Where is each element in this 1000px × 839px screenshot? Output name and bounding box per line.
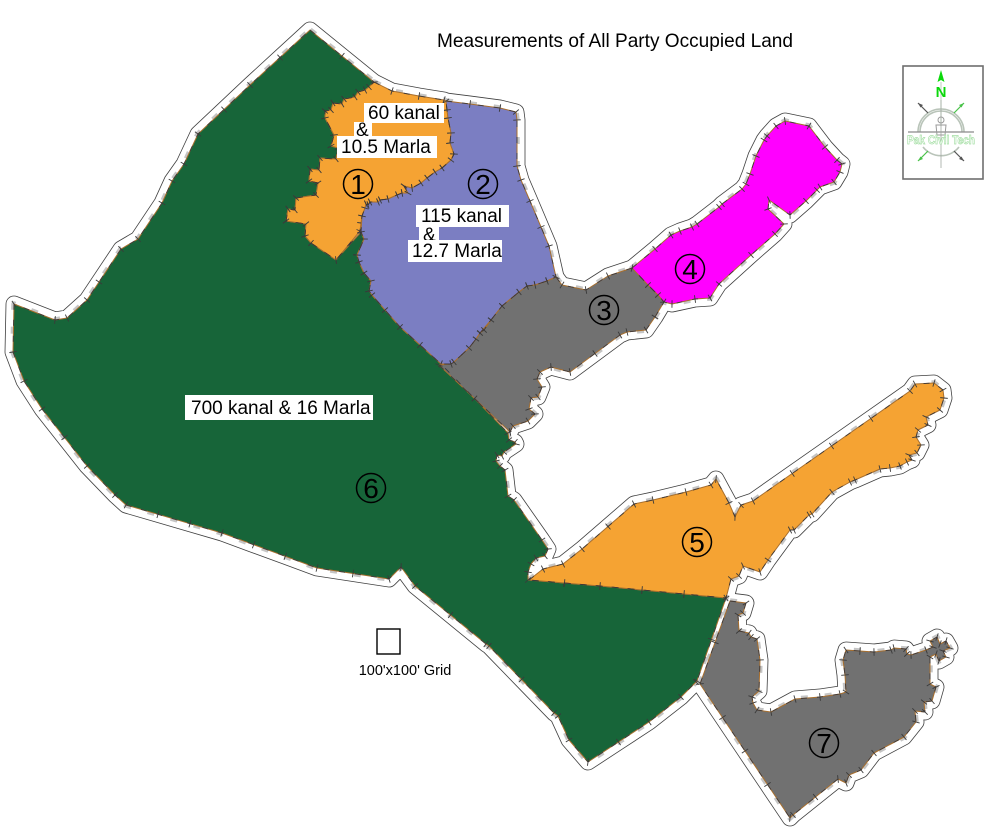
svg-text:N: N [936,84,947,101]
svg-text:3: 3 [596,295,612,326]
svg-text:6: 6 [363,473,379,504]
svg-text:5: 5 [689,527,705,558]
svg-text:100'x100' Grid: 100'x100' Grid [359,663,452,679]
svg-text:2: 2 [475,169,491,200]
svg-text:Measurements of All Party Occu: Measurements of All Party Occupied Land [437,30,793,52]
svg-text:1: 1 [350,169,366,200]
svg-text:60 kanal: 60 kanal [368,103,440,124]
svg-text:4: 4 [682,254,698,285]
svg-text:12.7 Marla: 12.7 Marla [412,241,502,262]
svg-text:7: 7 [816,728,832,759]
svg-text:115 kanal: 115 kanal [421,206,502,227]
svg-text:700 kanal & 16 Marla: 700 kanal & 16 Marla [191,398,371,419]
svg-text:Pak Civil Tech: Pak Civil Tech [907,133,975,147]
svg-text:10.5 Marla: 10.5 Marla [341,137,431,158]
